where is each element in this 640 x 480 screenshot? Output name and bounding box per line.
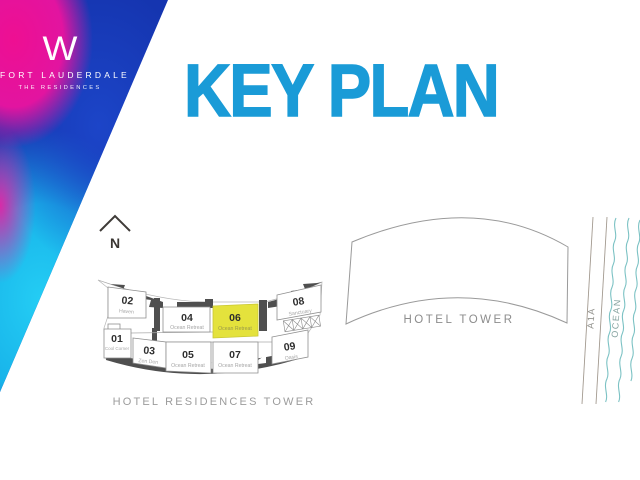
unit-02: 02 Haven: [108, 287, 146, 318]
unit-06-highlighted: 06 Ocean Retreat: [213, 304, 258, 338]
unit-number: 09: [283, 340, 297, 354]
unit-name: Ocean Retreat: [218, 363, 252, 369]
ocean-wave-line: [631, 220, 640, 381]
north-arrow-chevron-icon: [100, 216, 130, 231]
core-bar: [154, 298, 160, 331]
hotel-tower-outline: [346, 218, 568, 324]
key-plan-diagram: N: [0, 0, 640, 480]
unit-name: Ocean Retreat: [170, 325, 204, 331]
unit-03: 03 Zen Den: [133, 338, 166, 368]
unit-01: 01 Cool Corner: [104, 324, 131, 358]
core-bar: [259, 300, 267, 331]
residences-tower-plan: 01 Cool Corner 02 Haven 03 Zen Den 0: [98, 280, 322, 408]
unit-name: Oasis: [284, 354, 298, 362]
ocean: OCEAN: [605, 218, 640, 402]
unit-number: 06: [229, 312, 241, 324]
unit-number: 01: [111, 333, 123, 345]
unit-number: 02: [121, 295, 134, 308]
a1a-road: A1A: [582, 217, 607, 404]
residences-tower-label: HOTEL RESIDENCES TOWER: [113, 396, 316, 408]
core-bar: [177, 302, 208, 307]
unit-number: 03: [143, 345, 156, 358]
unit-name: Ocean Retreat: [218, 326, 252, 332]
hotel-tower-label: HOTEL TOWER: [404, 314, 515, 326]
unit-name: Cool Corner: [105, 346, 130, 351]
core-bar: [152, 328, 157, 341]
hotel-tower-plan: HOTEL TOWER: [346, 218, 568, 326]
unit-number: 08: [292, 295, 306, 309]
ocean-label: OCEAN: [610, 298, 623, 338]
slide: W FORT LAUDERDALE THE RESIDENCES KEY PLA…: [0, 0, 640, 480]
unit-number: 07: [229, 349, 241, 361]
unit-number: 04: [181, 312, 193, 324]
unit-07: 07 Ocean Retreat: [213, 342, 258, 373]
north-arrow: N: [100, 216, 130, 251]
unit-number: 05: [182, 349, 194, 361]
unit-05: 05 Ocean Retreat: [166, 342, 211, 373]
road-edge-line: [596, 217, 607, 404]
road-label: A1A: [585, 307, 596, 329]
unit-04: 04 Ocean Retreat: [163, 307, 210, 332]
unit-name: Ocean Retreat: [171, 363, 205, 369]
north-label: N: [110, 235, 120, 251]
